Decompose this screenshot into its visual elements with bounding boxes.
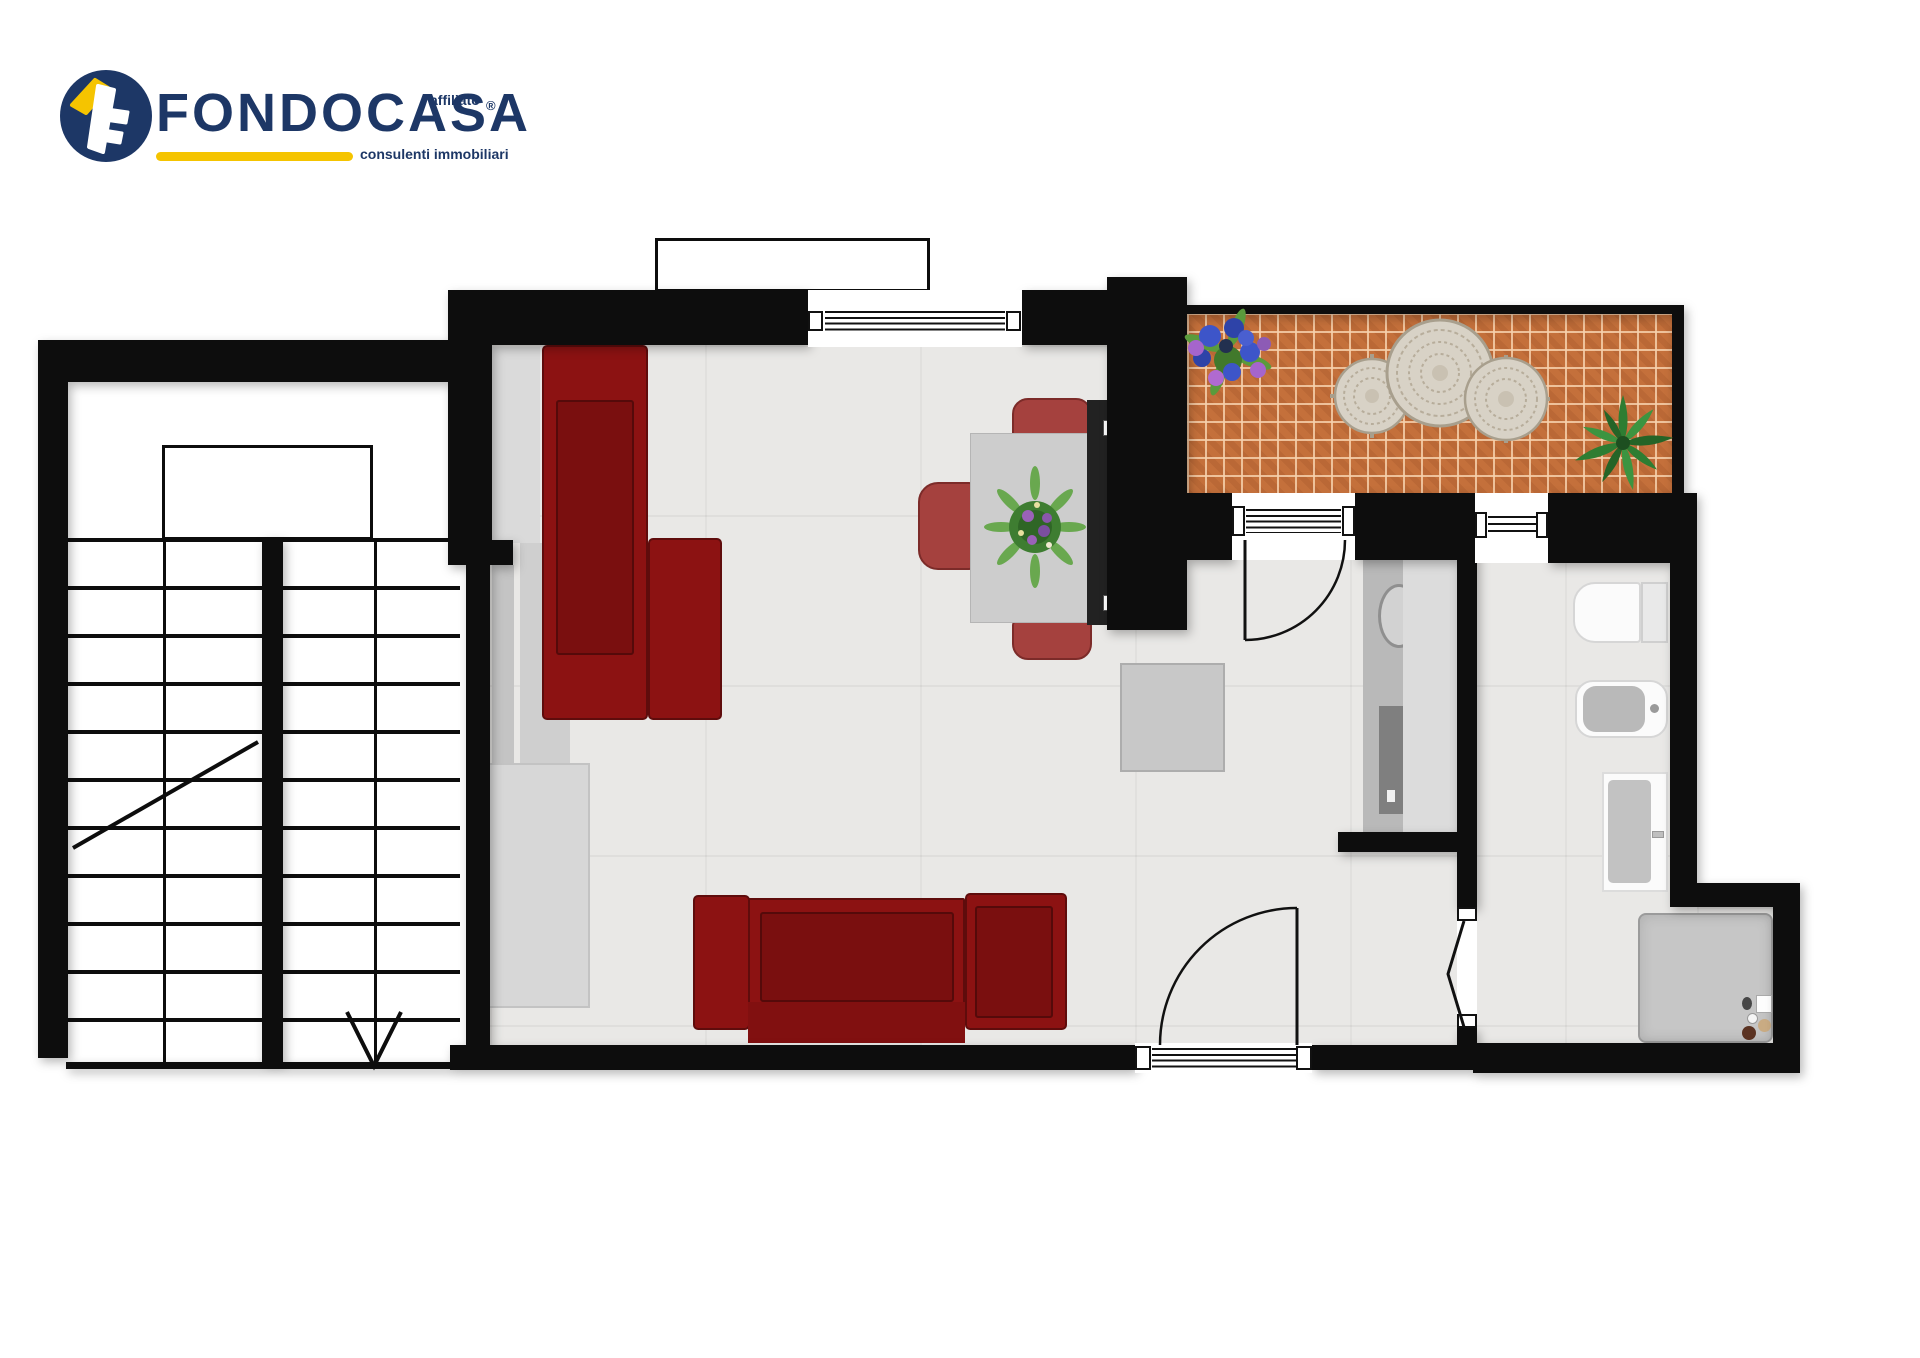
wall-bath-right-lower [1773, 907, 1800, 1073]
cooktop-knob [1387, 790, 1395, 802]
window-glazing [825, 311, 1005, 331]
shower-mixer-knob [1742, 997, 1752, 1010]
terrace-french-door [1232, 493, 1355, 560]
floor-plan-page: FONDOCASA affiliato ® consulenti immobil… [0, 0, 1920, 1358]
sideboard-upper [492, 347, 540, 543]
hall-cabinet [1120, 663, 1225, 772]
wall-living-left-lower [466, 565, 490, 1045]
door-jamb [1342, 506, 1355, 536]
door-jamb [1457, 1014, 1477, 1028]
media-unit-handle [1103, 420, 1112, 436]
window-jamb [1536, 512, 1548, 538]
red-sofa-armrest [693, 895, 750, 1030]
outside-mask [1684, 313, 1697, 495]
toilet-bowl [1573, 582, 1641, 643]
wall-stair-top [38, 340, 466, 382]
red-sofa-backrest [748, 1002, 965, 1043]
terrace-floor [1187, 313, 1672, 495]
bathroom-folding-door [1457, 907, 1477, 1028]
door-glazing [1152, 1048, 1296, 1068]
bathroom-window [1475, 493, 1548, 563]
shower-accessory [1742, 1026, 1756, 1040]
living-room-window [808, 290, 1022, 347]
washbasin-bowl [1608, 780, 1651, 883]
shower-faucet-plate [1756, 995, 1772, 1013]
window-jamb [1006, 311, 1021, 331]
dining-chair-bottom [1012, 620, 1092, 660]
door-jamb [1135, 1046, 1151, 1070]
wall-living-left-upper [448, 290, 492, 565]
stair-flight-right [283, 538, 460, 1068]
media-unit [1087, 400, 1112, 625]
window-glazing [1488, 516, 1536, 534]
dining-table [970, 433, 1100, 623]
stair-landing [162, 445, 373, 540]
affiliate-label: affiliato [430, 92, 480, 108]
long-red-sofa-chaise [648, 538, 722, 720]
window-jamb [808, 311, 823, 331]
wall-stair-left [38, 340, 68, 1058]
bidet-faucet [1650, 704, 1659, 713]
dining-chair-left [918, 482, 975, 570]
red-armchair-seat [975, 906, 1053, 1018]
door-glazing [1246, 509, 1341, 533]
wall-north-a [448, 290, 808, 345]
logo-underline-bar [156, 152, 353, 161]
toilet-tank [1641, 582, 1668, 643]
door-jamb [1232, 506, 1245, 536]
brand-tagline: consulenti immobiliari [360, 146, 509, 162]
south-french-door [1135, 1043, 1312, 1073]
long-red-sofa-seat [556, 400, 634, 655]
media-unit-handle [1103, 595, 1112, 611]
registered-mark: ® [486, 98, 496, 113]
kitchen-counter-top [1403, 560, 1460, 833]
wall-south-a [450, 1045, 1135, 1070]
wall-north-b [1022, 290, 1107, 345]
red-sofa-seat [760, 912, 954, 1002]
fondocasa-logo: FONDOCASA affiliato ® consulenti immobil… [58, 68, 578, 178]
washbasin-faucet [1652, 831, 1664, 838]
wall-stair-center [262, 538, 283, 1068]
dining-chair-top [1012, 398, 1092, 438]
window-jamb [1475, 512, 1487, 538]
bidet-basin [1583, 686, 1645, 732]
stair-divider-right [374, 538, 377, 1066]
wall-south-b [1312, 1045, 1473, 1070]
door-jamb [1296, 1046, 1312, 1070]
balcony-niche-outline [655, 238, 930, 292]
logo-mark [58, 68, 154, 164]
door-jamb [1457, 907, 1477, 921]
wall-bath-bottom [1473, 1043, 1800, 1073]
stair-divider-left [163, 538, 166, 1066]
shower-drain [1747, 1013, 1758, 1024]
shower-soap-dish [1758, 1019, 1771, 1032]
sideboard-strip [492, 565, 514, 763]
storage-cabinet [488, 763, 590, 1008]
